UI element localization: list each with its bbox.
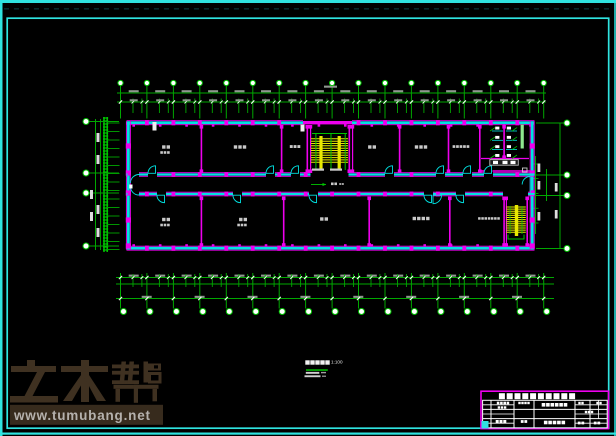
svg-text:1:100: 1:100 xyxy=(331,360,343,365)
svg-text:www.tumubang.net: www.tumubang.net xyxy=(13,408,151,423)
